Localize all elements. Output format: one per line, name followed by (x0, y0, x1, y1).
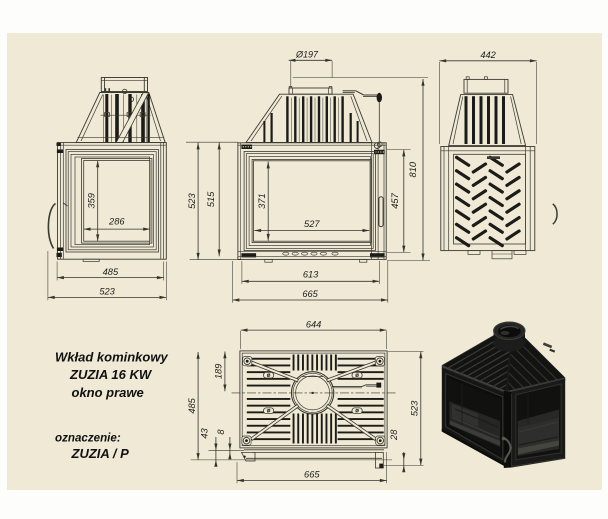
svg-text:371: 371 (257, 193, 267, 209)
svg-text:527: 527 (304, 219, 320, 229)
svg-text:485: 485 (187, 397, 197, 413)
svg-text:oznaczenie:: oznaczenie: (55, 432, 121, 445)
svg-text:523: 523 (99, 287, 115, 297)
svg-text:810: 810 (408, 161, 418, 177)
svg-text:613: 613 (303, 269, 319, 279)
svg-text:457: 457 (390, 192, 400, 208)
svg-text:43: 43 (200, 428, 210, 439)
svg-text:189: 189 (214, 364, 224, 380)
svg-text:okno prawe: okno prawe (72, 385, 144, 400)
svg-text:ZUZIA / P: ZUZIA / P (71, 446, 130, 461)
svg-text:665: 665 (304, 470, 320, 480)
svg-text:Wkład kominkowy: Wkład kominkowy (55, 350, 168, 365)
svg-text:Ø197: Ø197 (295, 50, 319, 60)
svg-text:28: 28 (389, 429, 399, 441)
svg-text:523: 523 (187, 193, 197, 209)
svg-text:665: 665 (302, 289, 318, 299)
svg-text:359: 359 (87, 193, 97, 209)
svg-text:523: 523 (410, 400, 420, 416)
svg-text:8: 8 (216, 429, 226, 435)
svg-text:286: 286 (108, 217, 125, 227)
svg-text:ZUZIA 16 KW: ZUZIA 16 KW (69, 367, 153, 382)
svg-text:644: 644 (306, 319, 322, 329)
svg-text:485: 485 (103, 267, 119, 277)
svg-text:442: 442 (480, 50, 496, 60)
svg-text:515: 515 (206, 191, 216, 207)
